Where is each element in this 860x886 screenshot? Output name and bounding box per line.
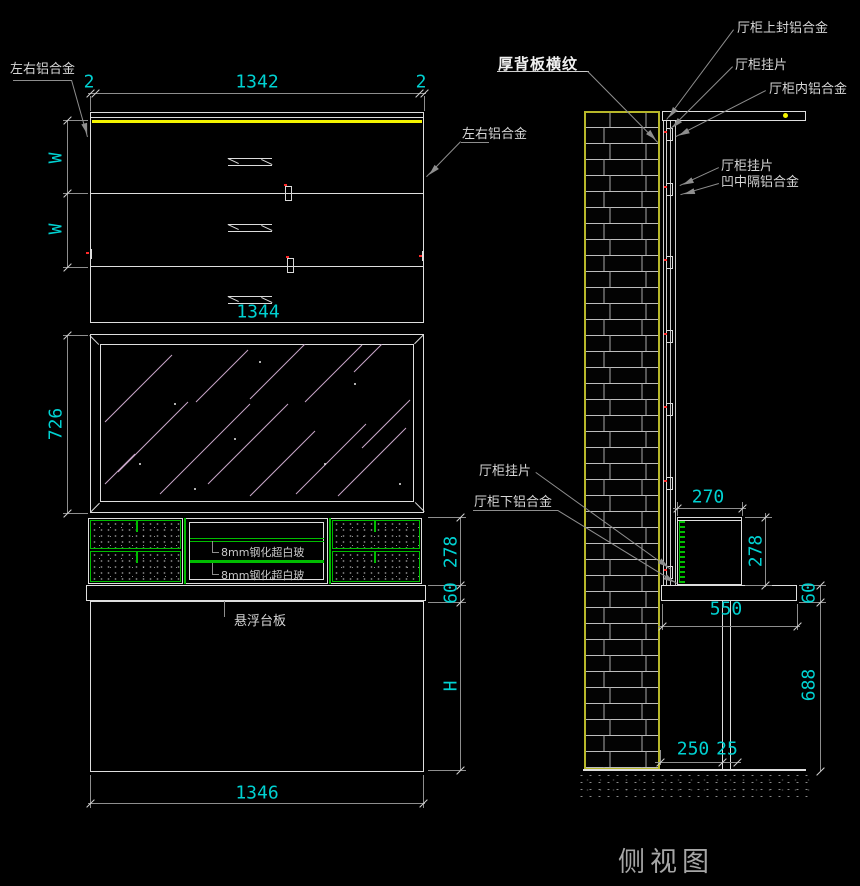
drawer-handle [136, 551, 138, 563]
green-divider [184, 518, 186, 584]
clip-red-mark [664, 259, 667, 261]
ext-line [90, 96, 91, 111]
slide-arrow-icon [228, 165, 272, 166]
clip-red-mark [664, 131, 667, 133]
clip-red-mark [664, 186, 667, 188]
hanger-clip [666, 403, 673, 416]
hanger-clip [666, 330, 673, 343]
green-divider [329, 518, 331, 584]
dim-line [673, 508, 746, 509]
dim-top-width: 1342 [235, 72, 278, 93]
dim-lower-height: H [441, 681, 462, 692]
hanger-label-1: 厅柜挂片 [735, 58, 787, 73]
clip-red-mark [664, 406, 667, 408]
hanger-label-3: 厅柜挂片 [479, 464, 531, 479]
lr-alu-label-left: 左右铝合金 [10, 62, 75, 77]
dim-counter-depth: 550 [710, 599, 743, 620]
dim-w2: W [46, 224, 67, 235]
lr-alu-label-right: 左右铝合金 [462, 127, 527, 142]
drawer-panel [332, 551, 420, 582]
leader-arrow [680, 188, 695, 198]
joint-red-mark [286, 256, 289, 258]
inner-alu-label: 厅柜内铝合金 [769, 82, 847, 97]
dim-leg-height: 688 [799, 669, 820, 702]
hanger-clip [666, 477, 673, 490]
line [422, 251, 423, 261]
hanger-label-2: 厅柜挂片 [721, 159, 773, 174]
slide-arrow-icon [228, 158, 272, 159]
joint-red-mark [284, 184, 287, 186]
leader-arrow [675, 128, 690, 140]
glass-label-1: 8mm钢化超白玻 [221, 545, 304, 560]
dim-edge-left: 2 [84, 72, 95, 93]
door-joint-mark [285, 186, 292, 201]
float-board-label: 悬浮台板 [234, 614, 286, 629]
cad-canvas: 8mm钢化超白玻 8mm钢化超白玻 悬浮台板 1342 2 2 W W 1344… [0, 0, 860, 886]
glass-shelf-line [190, 560, 324, 563]
line [91, 193, 423, 194]
hanger-clip [666, 256, 673, 269]
leader-line [473, 510, 558, 511]
dim-base-a: 250 [677, 739, 710, 760]
dim-line [658, 626, 800, 627]
dim-box-height: 278 [746, 535, 767, 568]
dim-mirror-height: 726 [46, 408, 67, 441]
line [678, 520, 741, 521]
side-cabinet-box [677, 517, 742, 585]
ext-line [424, 96, 425, 111]
clip-red-mark [664, 480, 667, 482]
side-glass-strip [679, 521, 685, 583]
dim-counter-thickness-side: 60 [799, 582, 820, 604]
joint-red-mark [86, 252, 89, 254]
floating-countertop [86, 585, 426, 601]
front-top-cabinet [90, 112, 424, 323]
leader-line [497, 71, 589, 72]
glass-shelf-line [190, 541, 324, 542]
ext-line [745, 517, 772, 518]
clip-red-mark [664, 333, 667, 335]
dim-line [820, 585, 821, 771]
leader-line [13, 80, 72, 81]
dim-line [655, 762, 741, 763]
drawer-handle [374, 520, 376, 532]
dim-line [88, 93, 426, 94]
back-panel-line [675, 121, 676, 585]
brick-wall [584, 111, 660, 770]
bottom-alu-label: 厅柜下铝合金 [474, 495, 552, 510]
mirror-hatch [100, 344, 414, 502]
dim-base-b: 25 [716, 739, 738, 760]
line [91, 249, 92, 259]
drawer-panel [332, 520, 420, 549]
leader-line [224, 601, 225, 617]
slide-arrow-icon [228, 296, 272, 297]
slide-arrow-icon [228, 231, 272, 232]
top-seal-label: 厅柜上封铝合金 [737, 21, 828, 36]
side-view-title: 侧视图 [618, 840, 714, 879]
dim-mid-width: 1344 [236, 302, 279, 323]
dim-bottom-width: 1346 [235, 783, 278, 804]
leader-line [212, 552, 219, 553]
ext-line [745, 585, 772, 586]
back-panel-line [663, 121, 664, 585]
leader-line [461, 142, 489, 143]
leader-arrow [679, 177, 694, 188]
dim-box-width: 270 [692, 487, 725, 508]
slide-arrow-icon [228, 224, 272, 225]
dim-w1: W [46, 153, 67, 164]
shelf-marker [783, 113, 788, 118]
line [91, 266, 423, 267]
leader-arrow [425, 165, 439, 179]
dim-line [67, 335, 68, 513]
dim-panel-height: 278 [441, 536, 462, 569]
mid-alu-label: 凹中隔铝合金 [721, 175, 799, 190]
glass-label-2: 8mm钢化超白玻 [221, 568, 304, 583]
drawer-handle [136, 520, 138, 532]
floor-line [583, 769, 806, 771]
dim-edge-right: 2 [416, 72, 427, 93]
glass-shelf-line [190, 538, 324, 539]
line [91, 117, 423, 118]
ground-hatch [577, 772, 810, 798]
door-joint-mark [287, 258, 294, 273]
drawer-handle [374, 551, 376, 563]
yellow-accent-strip [92, 120, 422, 123]
leader-line [212, 574, 219, 575]
dim-counter-thickness: 60 [441, 582, 462, 604]
hanger-clip [666, 183, 673, 196]
